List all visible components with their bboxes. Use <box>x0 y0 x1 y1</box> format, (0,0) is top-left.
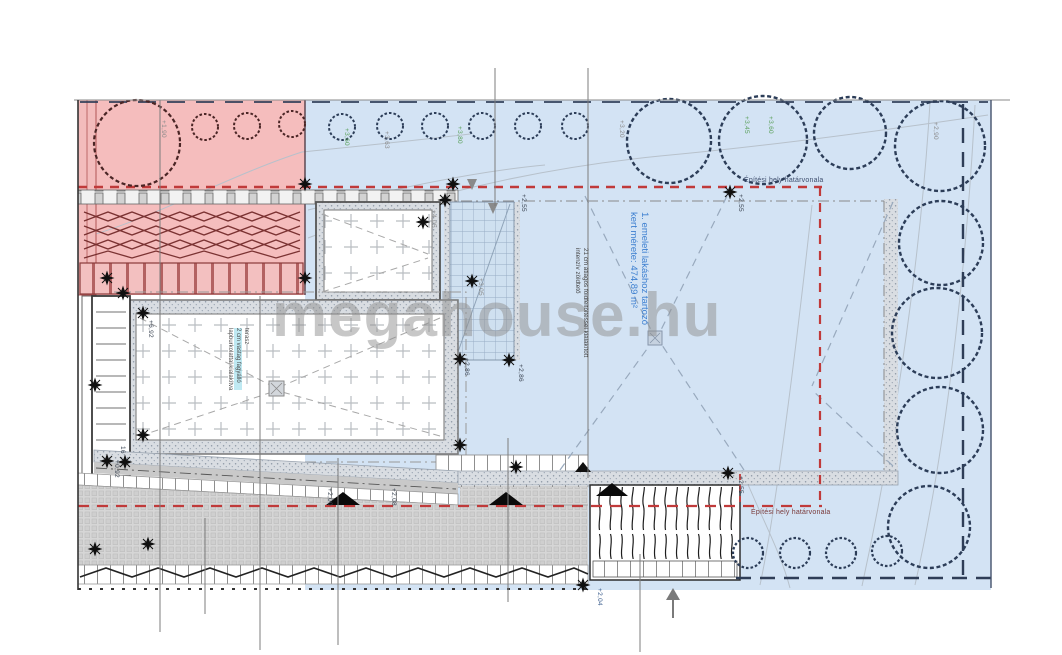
elevation-g360: +3,60 <box>343 128 350 146</box>
pink-band-bars <box>80 263 303 294</box>
elevation-s208: +2,08 <box>390 488 397 506</box>
watermark: megahouse.hu <box>272 280 722 351</box>
note-green-roof: 21 cm átlagos földfeltöltéssel kialakíto… <box>573 248 589 357</box>
note-garden-line1: 1. emeleti lakáshoz tartozó <box>639 212 650 325</box>
elevation-m286b: +2,86 <box>517 364 524 382</box>
elevation-g345: +3,45 <box>743 116 750 134</box>
elevation-t305: +3,05 <box>477 278 484 296</box>
elevation-l092: +0,92 <box>113 460 120 478</box>
roof-edge-band <box>458 471 898 485</box>
elevation-t405: +4,05 <box>430 210 437 228</box>
note-green-roof-line2: intenzív zöldtető <box>573 248 581 357</box>
note-garden-line2: kert mérete: 474,89 m² <box>628 212 639 325</box>
elevation-b255a: +2,55 <box>520 194 527 212</box>
elevation-g363: +3,63 <box>383 131 390 149</box>
elevation-p190: +1,90 <box>160 120 167 138</box>
stair-count-label: 16 <box>119 446 126 454</box>
label-boundary-bottom: Építési hely határvonala <box>751 509 831 516</box>
note-terrace: terasz 2 cm vastag fagyálló lapburkolatt… <box>226 328 250 390</box>
elevation-l692: +6,92 <box>147 320 154 338</box>
note-terrace-line3: lapburkolattal kialakítva <box>226 328 234 390</box>
elevation-m286a: +2,86 <box>463 358 470 376</box>
note-garden-size: 1. emeleti lakáshoz tartozó kert mérete:… <box>628 212 650 325</box>
elevation-b255c: +2,55 <box>737 476 744 494</box>
site-plan: megahouse.hu Építési hely határvonala Ép… <box>0 0 1062 655</box>
label-boundary-top: Építési hely határvonala <box>744 177 824 184</box>
elevation-g290: +2,90 <box>932 122 939 140</box>
note-green-roof-line1: 21 cm átlagos földfeltöltéssel kialakíto… <box>581 248 589 357</box>
elevation-g320: +3,20 <box>618 120 625 138</box>
elevation-g360b: +3,60 <box>767 116 774 134</box>
timber-deck <box>590 485 740 580</box>
elevation-s200: +2,00 <box>326 488 333 506</box>
elevation-b255b: +2,55 <box>737 194 744 212</box>
note-terrace-line1: terasz <box>242 328 250 390</box>
note-terrace-line2: 2 cm vastag fagyálló <box>234 328 242 390</box>
elevation-s204: +2,04 <box>596 588 603 606</box>
elevation-g380: +3,80 <box>456 126 463 144</box>
